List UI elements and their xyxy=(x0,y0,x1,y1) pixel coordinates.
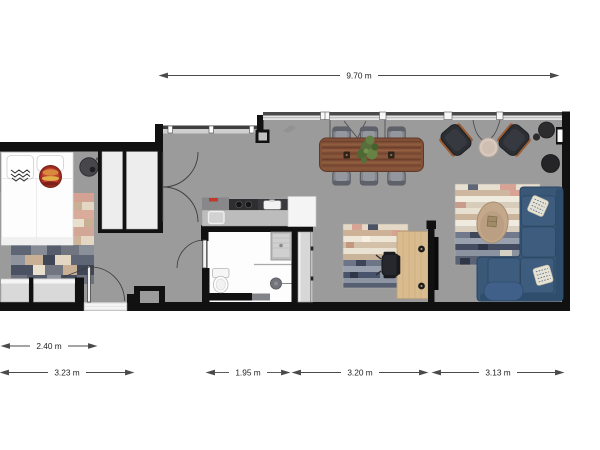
svg-text:3.23 m: 3.23 m xyxy=(54,368,79,378)
svg-text:3.13 m: 3.13 m xyxy=(485,368,510,378)
svg-text:1.95 m: 1.95 m xyxy=(235,368,260,378)
svg-text:2.40 m: 2.40 m xyxy=(36,341,61,351)
svg-text:9.70 m: 9.70 m xyxy=(346,71,371,81)
svg-text:3.20 m: 3.20 m xyxy=(347,368,372,378)
